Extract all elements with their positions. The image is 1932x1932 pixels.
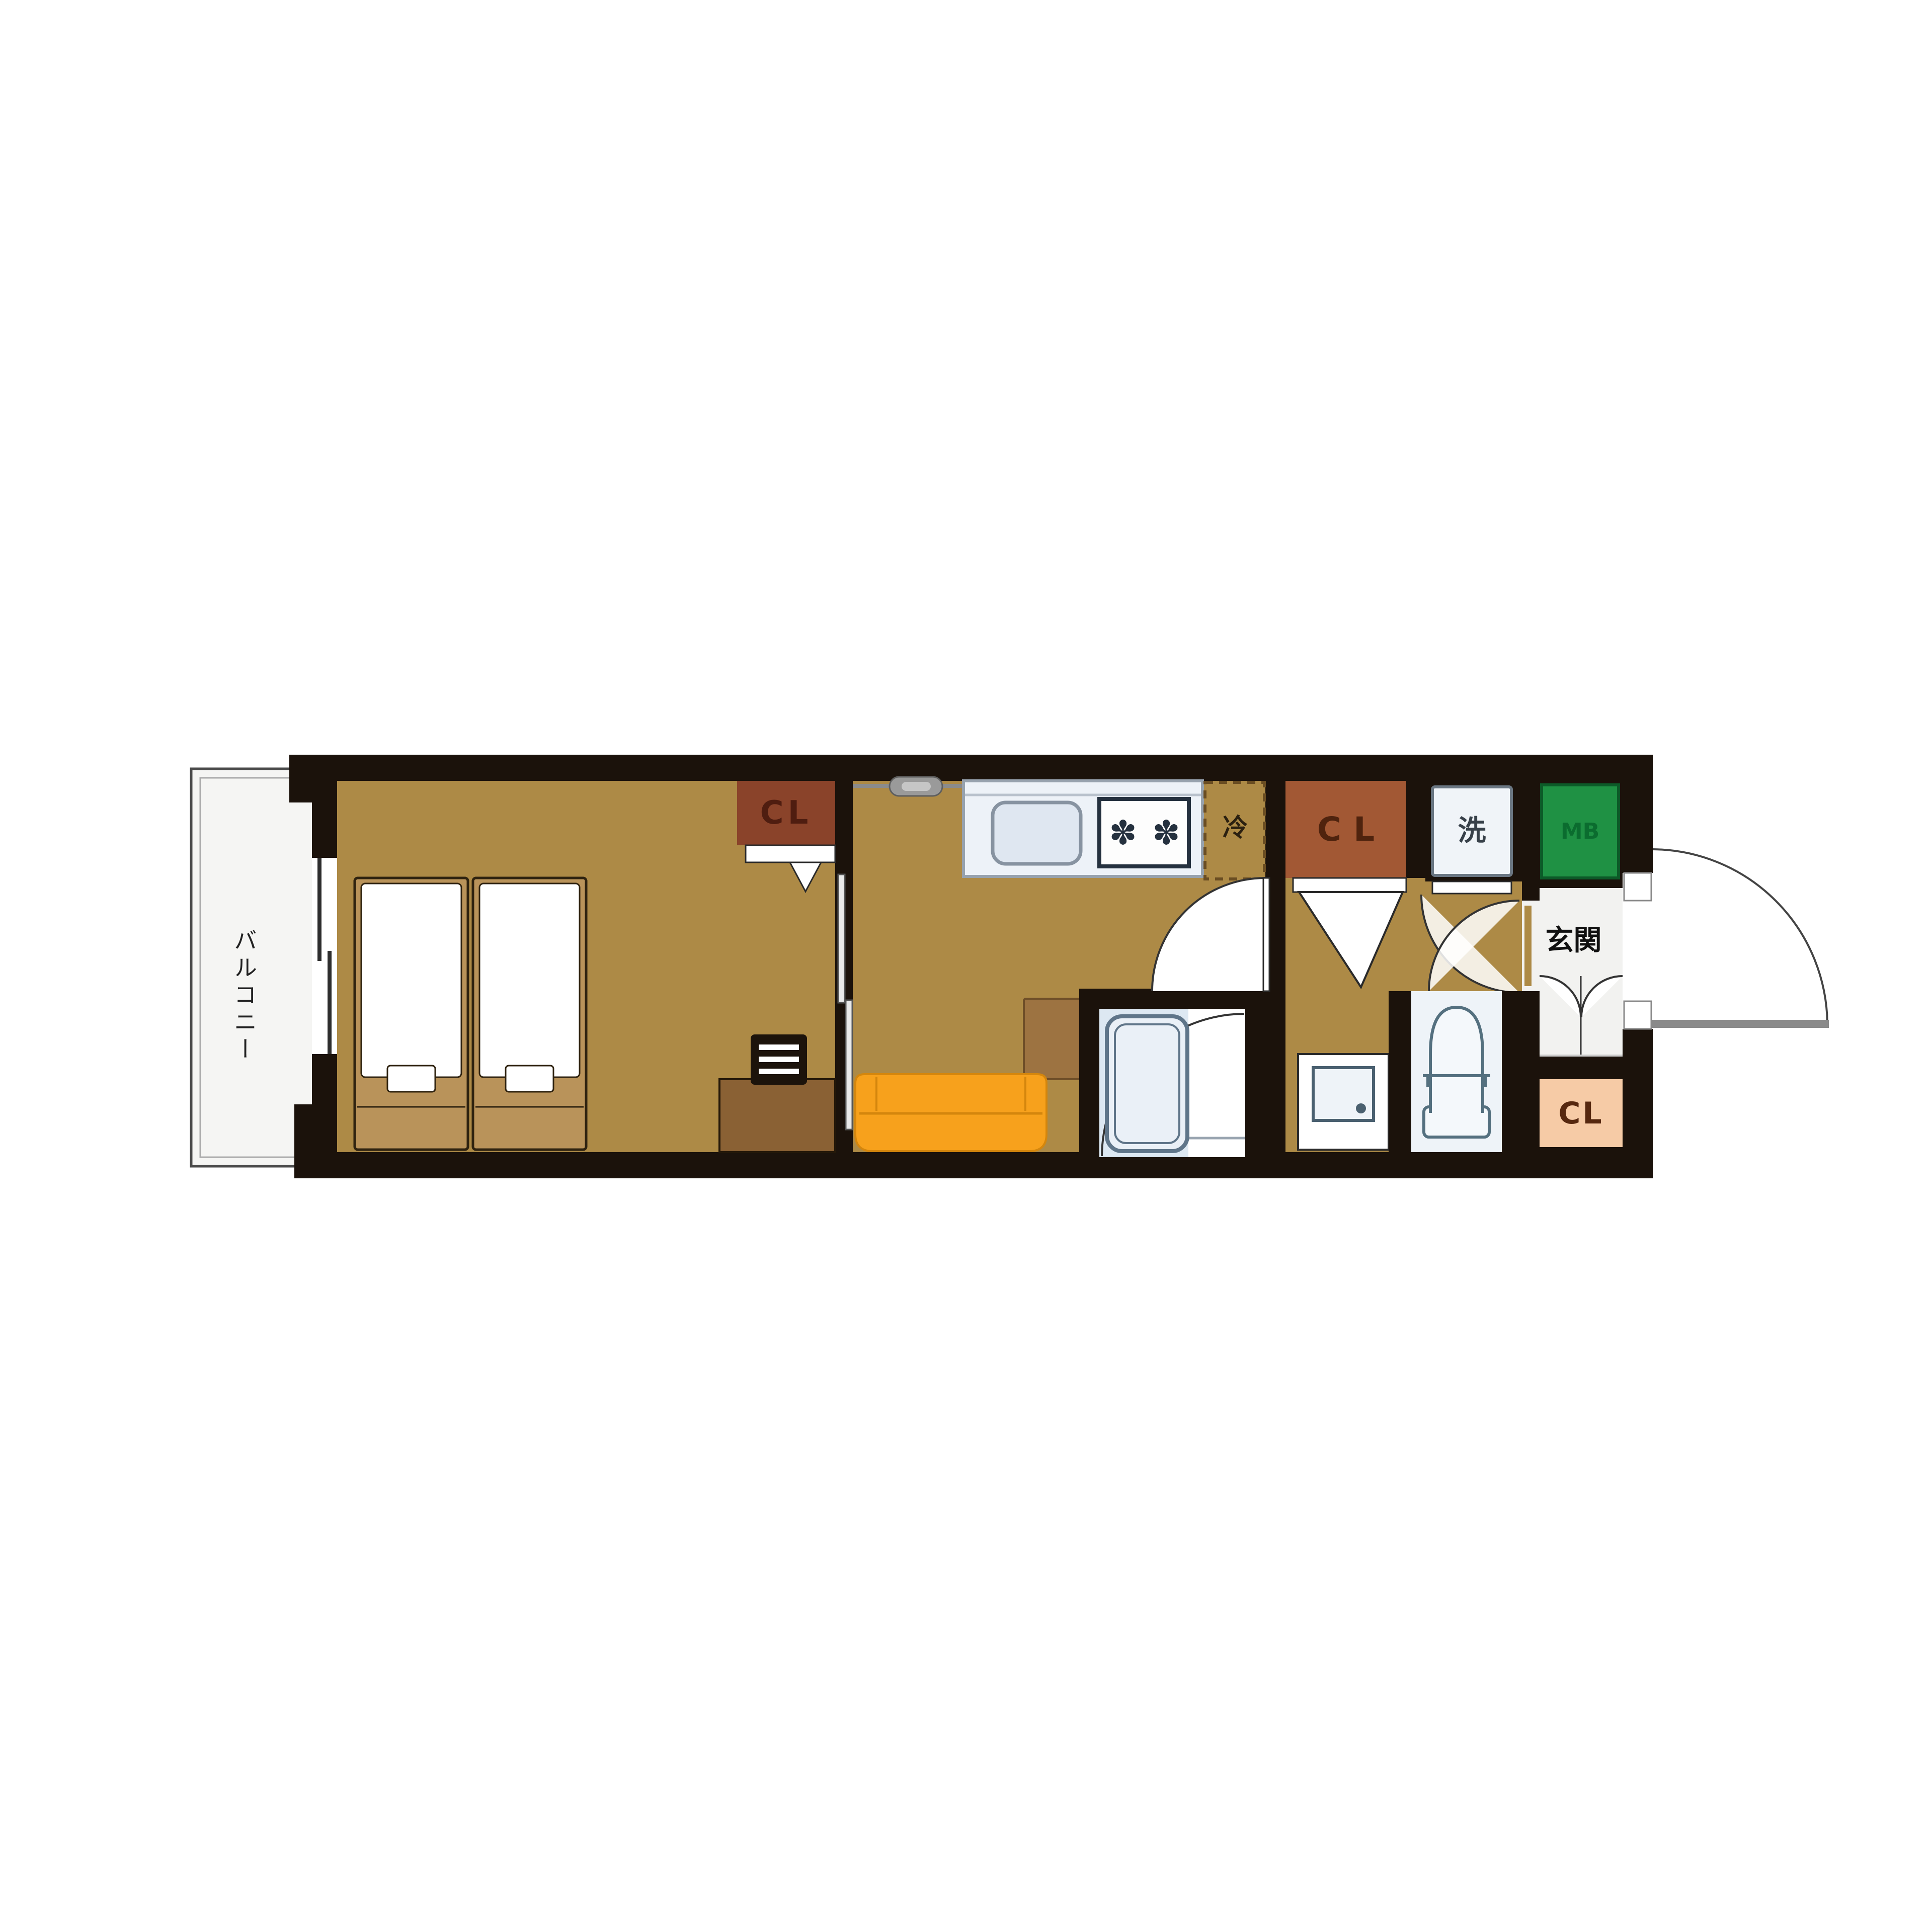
kitchen-sink [993,802,1081,864]
stove-burner-icon: ✽ [1152,814,1180,852]
window-slider-highlight [902,782,931,791]
bed-1 [355,878,468,1150]
floor-plan-page: ✽ ✽ [0,0,1932,1932]
sofa [855,1074,1046,1151]
window-sash-right [328,951,332,1054]
bathroom-door-swing-area [1188,1009,1245,1157]
door-leaf [1263,878,1269,991]
desk [719,1079,835,1152]
front-door [1623,849,1829,1029]
window-opening [312,858,337,1054]
floor-plan: ✽ ✽ [186,755,1852,1187]
washbasin-drain [1356,1103,1366,1113]
washbasin [1298,1054,1389,1150]
bedroom-closet [737,781,835,845]
bed-2 [473,878,586,1150]
wall-washer-mb [1518,781,1538,881]
bed-1-pillow [387,1066,435,1092]
front-door-jamb-top [1624,873,1651,901]
meter-box [1542,785,1619,878]
sliding-door-panel-1 [838,874,845,1003]
entrance-closet [1540,1079,1623,1147]
bed-1-mattress [361,883,461,1077]
fridge-space [1205,782,1264,879]
bedroom-window [312,858,337,1054]
chair [751,1034,807,1085]
toilet-wall-left [1389,991,1411,1152]
hall-closet [1285,781,1406,878]
floor-plan-drawing: ✽ ✽ [186,755,1852,1187]
bed-2-mattress [479,883,580,1077]
bed-2-pillow [506,1066,553,1092]
washroom-threshold [1432,881,1511,894]
bathroom [1079,989,1265,1178]
wall-cl-washer [1406,781,1425,878]
front-door-jamb-bottom [1624,1001,1651,1029]
bedroom-closet-door [746,845,835,862]
toilet-bowl [1430,1007,1483,1113]
washing-machine-space [1432,787,1511,875]
toilet-wall-right [1502,991,1522,1152]
sliding-door-panel-2 [846,1000,852,1130]
hall-closet-door-strip [1293,878,1406,892]
bathtub [1107,1016,1187,1151]
stove-burner-icon: ✽ [1109,814,1137,852]
kitchen-counter: ✽ ✽ [963,781,1202,876]
front-door-arc [1653,849,1827,1024]
washbasin-bowl [1313,1068,1374,1120]
entrance-step-edge [1524,906,1532,986]
window-sash-left [317,858,321,961]
